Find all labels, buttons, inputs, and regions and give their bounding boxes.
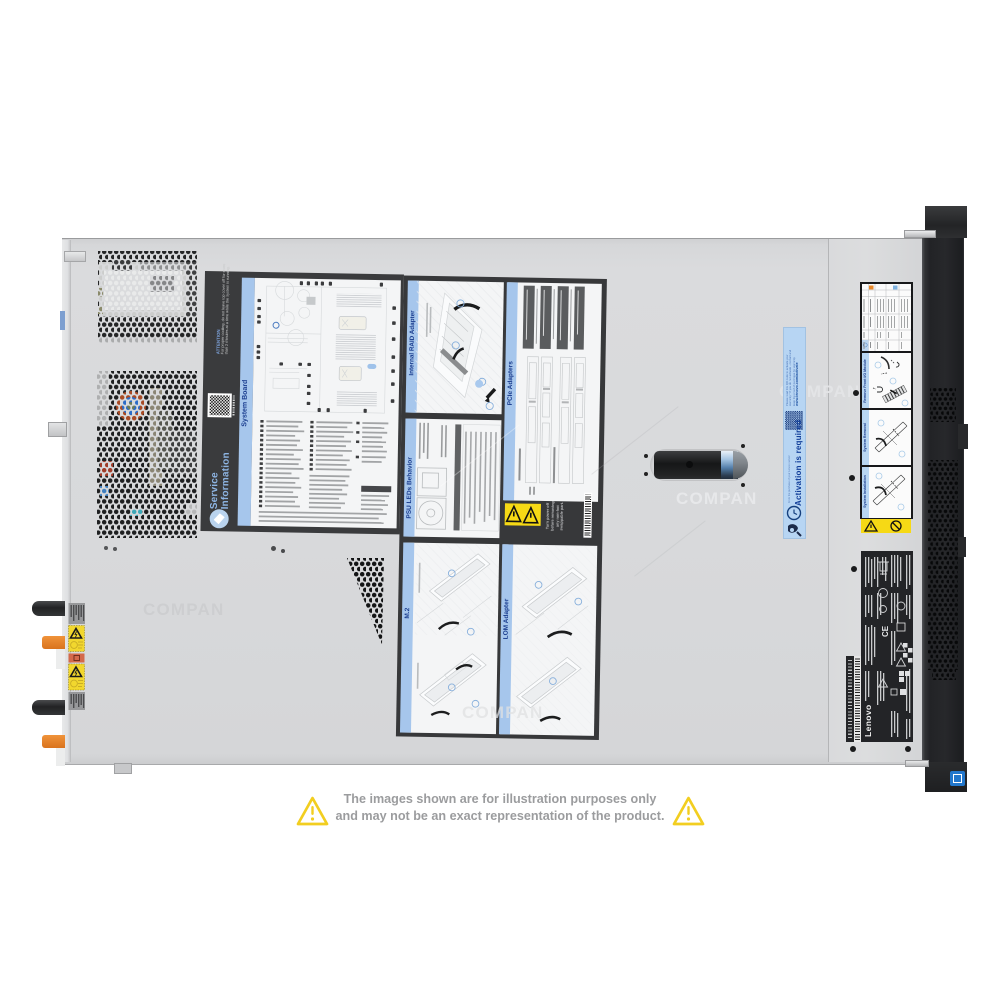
- svg-text:CE: CE: [881, 625, 890, 637]
